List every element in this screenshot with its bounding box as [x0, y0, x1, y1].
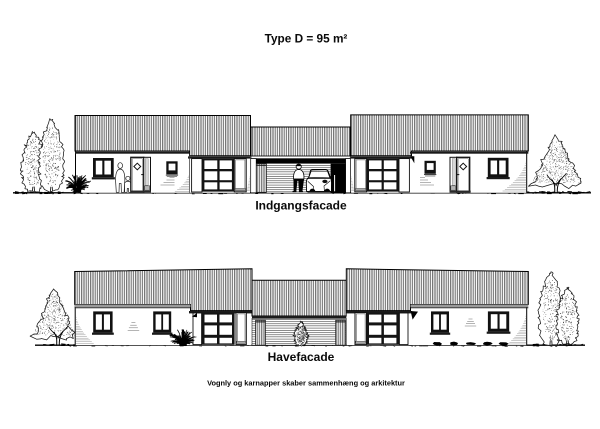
- svg-text:Type D = 95 m²: Type D = 95 m²: [265, 32, 348, 46]
- svg-text:Indgangsfacade: Indgangsfacade: [255, 199, 347, 213]
- svg-text:Vognly og karnapper skaber sam: Vognly og karnapper skaber sammenhæng og…: [207, 379, 405, 388]
- svg-text:Havefacade: Havefacade: [268, 350, 335, 364]
